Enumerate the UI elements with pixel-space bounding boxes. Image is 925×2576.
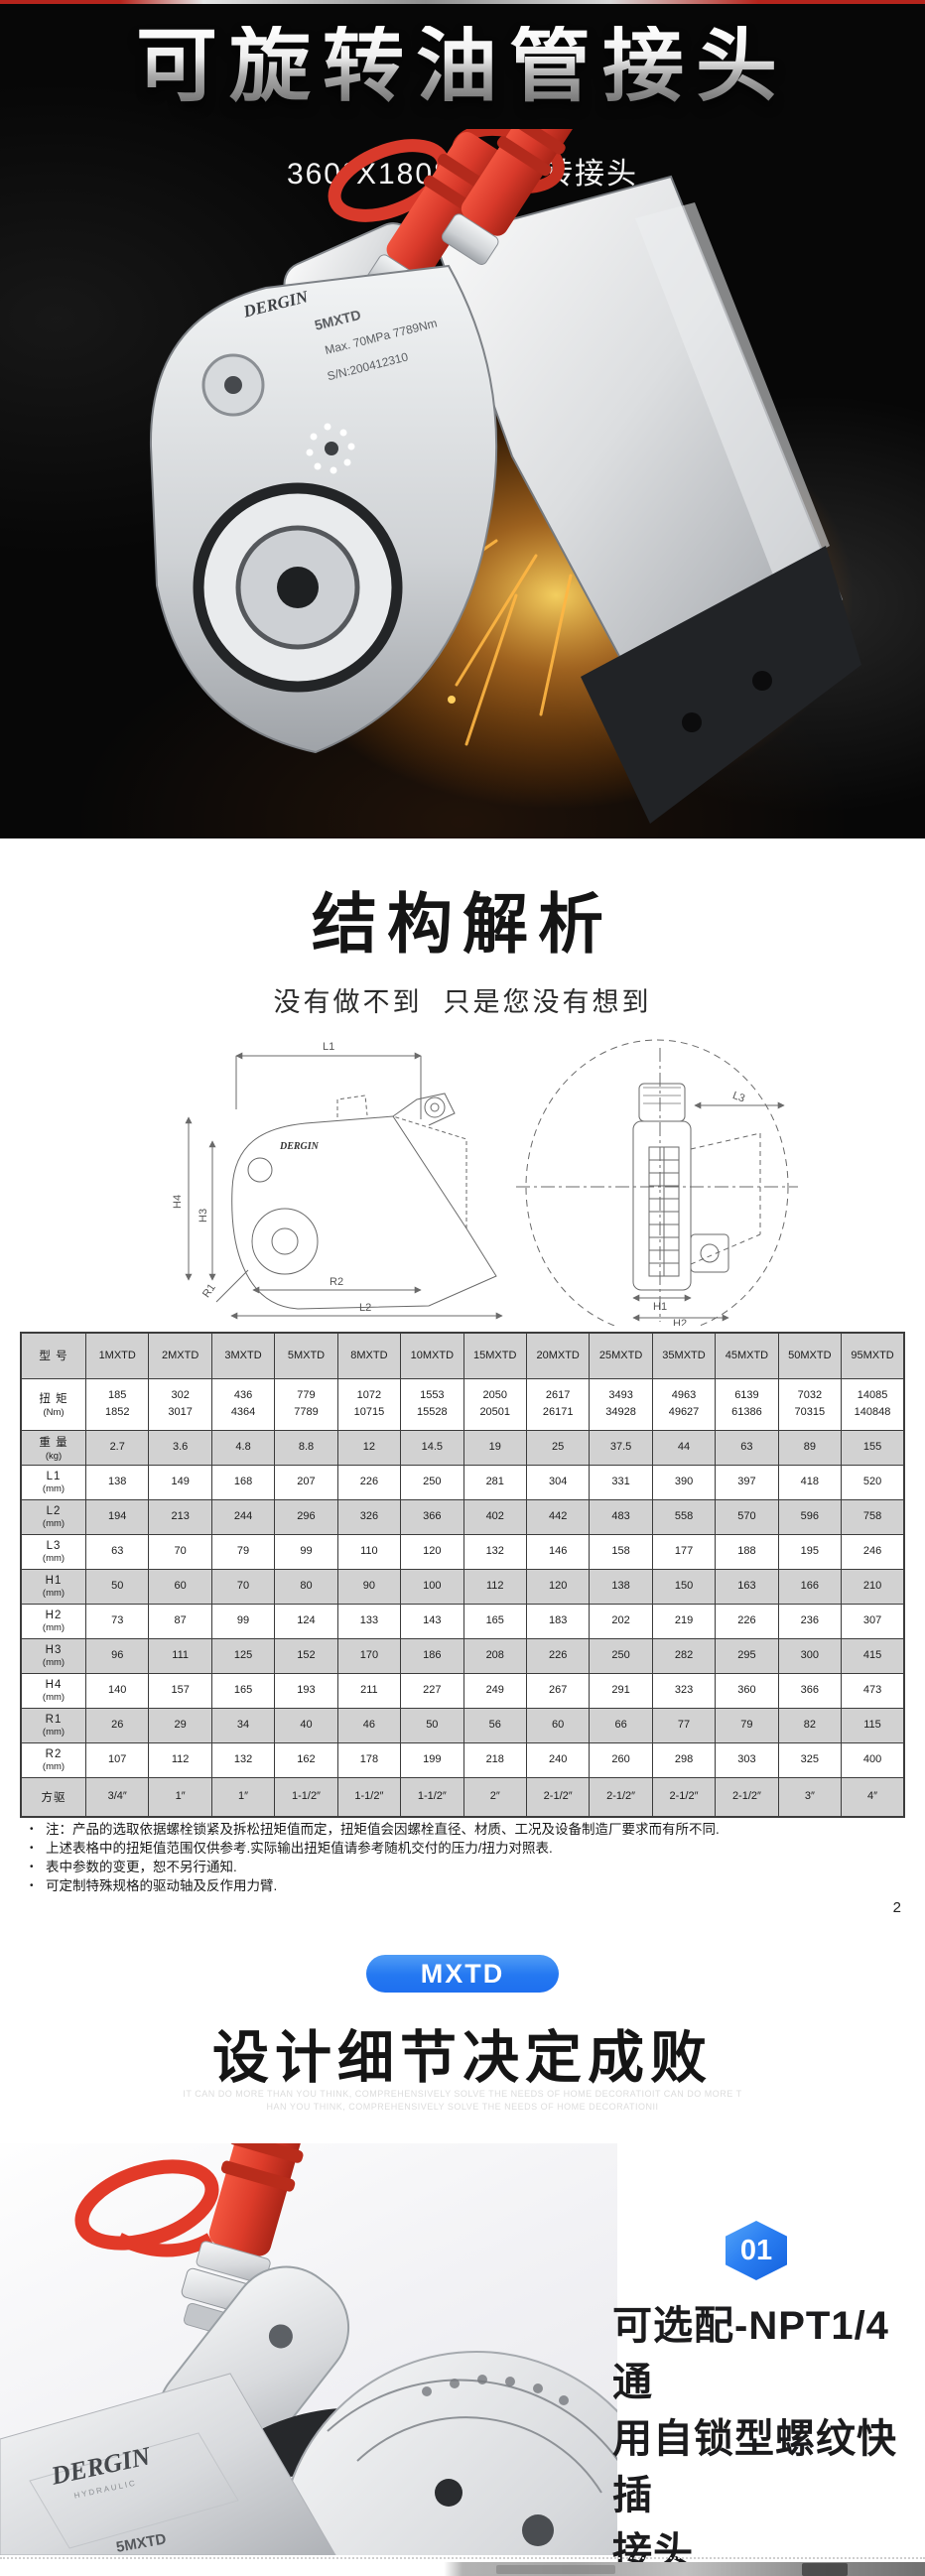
- spec-value: 260: [590, 1742, 652, 1777]
- spec-value: 295: [716, 1638, 778, 1673]
- spec-value: 227: [401, 1673, 463, 1708]
- spec-value: 307: [842, 1604, 904, 1638]
- spec-value: 168: [211, 1465, 274, 1499]
- spec-value: 1072 10715: [337, 1378, 400, 1430]
- spec-value: 66: [590, 1708, 652, 1742]
- spec-value: 415: [842, 1638, 904, 1673]
- spec-value: 366: [401, 1499, 463, 1534]
- spec-value: 157: [149, 1673, 211, 1708]
- spec-value: 473: [842, 1673, 904, 1708]
- spec-row-label: 型 号: [21, 1333, 86, 1378]
- feature-text-line2: 用自锁型螺纹快插: [612, 2411, 925, 2524]
- technical-drawing: L1 H4 H3 R1 R2 L2 L3 H1 H2 DERGIN: [0, 1030, 925, 1326]
- spec-value: 281: [463, 1465, 526, 1499]
- spec-row-label: L2(mm): [21, 1499, 86, 1534]
- spec-value: 107: [86, 1742, 149, 1777]
- svg-text:H4: H4: [172, 1195, 184, 1209]
- spec-row-label: 扭 矩(Nm): [21, 1378, 86, 1430]
- spec-model-header: 45MXTD: [716, 1333, 778, 1378]
- spec-value: 99: [275, 1534, 337, 1569]
- spec-value: 436 4364: [211, 1378, 274, 1430]
- spec-model-header: 8MXTD: [337, 1333, 400, 1378]
- spec-table: 型 号1MXTD2MXTD3MXTD5MXTD8MXTD10MXTD15MXTD…: [20, 1332, 905, 1818]
- spec-value: 2050 20501: [463, 1378, 526, 1430]
- spec-value: 758: [842, 1499, 904, 1534]
- drive-center: [277, 567, 319, 608]
- spec-value: 303: [716, 1742, 778, 1777]
- spec-value: 37.5: [590, 1430, 652, 1465]
- spec-value: 166: [778, 1569, 841, 1604]
- spec-value: 3″: [778, 1777, 841, 1817]
- spec-value: 213: [149, 1499, 211, 1534]
- spec-value: 3493 34928: [590, 1378, 652, 1430]
- note-item: 可定制特殊规格的驱动轴及反作用力臂.: [26, 1876, 899, 1895]
- spec-value: 249: [463, 1673, 526, 1708]
- spec-value: 162: [275, 1742, 337, 1777]
- spec-value: 82: [778, 1708, 841, 1742]
- hero-product-image: DERGIN 5MXTD Max. 70MPa 7789Nm S/N:20041…: [0, 129, 925, 838]
- spec-value: 4963 49627: [652, 1378, 715, 1430]
- spec-value: 226: [526, 1638, 589, 1673]
- spec-value: 90: [337, 1569, 400, 1604]
- spec-row-label: R2(mm): [21, 1742, 86, 1777]
- spec-value: 133: [337, 1604, 400, 1638]
- spec-value: 326: [337, 1499, 400, 1534]
- spec-value: 70: [211, 1569, 274, 1604]
- spec-value: 124: [275, 1604, 337, 1638]
- spec-value: 143: [401, 1604, 463, 1638]
- spec-value: 199: [401, 1742, 463, 1777]
- spec-value: 63: [86, 1534, 149, 1569]
- spec-value: 158: [590, 1534, 652, 1569]
- spec-value: 170: [337, 1638, 400, 1673]
- spec-value: 140: [86, 1673, 149, 1708]
- spec-model-header: 3MXTD: [211, 1333, 274, 1378]
- svg-text:L1: L1: [323, 1041, 334, 1053]
- spec-value: 2-1/2″: [590, 1777, 652, 1817]
- spec-value: 323: [652, 1673, 715, 1708]
- spec-value: 7032 70315: [778, 1378, 841, 1430]
- spec-row-label: 方驱: [21, 1777, 86, 1817]
- top-accent-strip: [0, 0, 925, 4]
- spec-value: 1553 15528: [401, 1378, 463, 1430]
- spec-value: 331: [590, 1465, 652, 1499]
- spec-value: 219: [652, 1604, 715, 1638]
- spec-value: 250: [401, 1465, 463, 1499]
- spec-value: 14.5: [401, 1430, 463, 1465]
- spec-value: 146: [526, 1534, 589, 1569]
- spec-model-header: 15MXTD: [463, 1333, 526, 1378]
- spec-value: 138: [86, 1465, 149, 1499]
- spec-value: 195: [778, 1534, 841, 1569]
- spec-value: 73: [86, 1604, 149, 1638]
- spec-value: 115: [842, 1708, 904, 1742]
- spec-value: 558: [652, 1499, 715, 1534]
- spec-value: 300: [778, 1638, 841, 1673]
- spec-value: 44: [652, 1430, 715, 1465]
- spec-value: 397: [716, 1465, 778, 1499]
- spec-value: 4.8: [211, 1430, 274, 1465]
- feature-number: 01: [740, 2235, 772, 2267]
- spec-value: 34: [211, 1708, 274, 1742]
- spec-value: 240: [526, 1742, 589, 1777]
- svg-text:L3: L3: [731, 1090, 747, 1104]
- note-item: 表中参数的变更，恕不另行通知.: [26, 1858, 899, 1876]
- spec-value: 155: [842, 1430, 904, 1465]
- spec-value: 207: [275, 1465, 337, 1499]
- spec-row-label: L3(mm): [21, 1534, 86, 1569]
- series-badge: MXTD: [366, 1955, 559, 1993]
- svg-text:R1: R1: [200, 1282, 218, 1300]
- spec-value: 19: [463, 1430, 526, 1465]
- spec-value: 177: [652, 1534, 715, 1569]
- note-item: 上述表格中的扭矩值范围仅供参考.实际输出扭矩值请参考随机交付的压力/扭力对照表.: [26, 1839, 899, 1858]
- spec-value: 2-1/2″: [652, 1777, 715, 1817]
- structure-subheading: 没有做不到 只是您没有想到: [0, 980, 925, 1019]
- spec-model-header: 20MXTD: [526, 1333, 589, 1378]
- spec-value: 40: [275, 1708, 337, 1742]
- spec-value: 210: [842, 1569, 904, 1604]
- spec-value: 366: [778, 1673, 841, 1708]
- spec-value: 779 7789: [275, 1378, 337, 1430]
- preview-fragment: [802, 2563, 848, 2576]
- spec-value: 79: [716, 1708, 778, 1742]
- spec-value: 400: [842, 1742, 904, 1777]
- spec-model-header: 25MXTD: [590, 1333, 652, 1378]
- svg-text:H2: H2: [673, 1318, 687, 1326]
- spec-value: 360: [716, 1673, 778, 1708]
- spec-value: 188: [716, 1534, 778, 1569]
- spec-model-header: 10MXTD: [401, 1333, 463, 1378]
- spec-value: 194: [86, 1499, 149, 1534]
- spec-value: 1″: [149, 1777, 211, 1817]
- spec-model-header: 35MXTD: [652, 1333, 715, 1378]
- spec-value: 2.7: [86, 1430, 149, 1465]
- spec-model-header: 50MXTD: [778, 1333, 841, 1378]
- spec-value: 100: [401, 1569, 463, 1604]
- spec-value: 63: [716, 1430, 778, 1465]
- spec-value: 50: [401, 1708, 463, 1742]
- spec-value: 2-1/2″: [716, 1777, 778, 1817]
- spec-value: 165: [211, 1673, 274, 1708]
- spec-value: 1-1/2″: [337, 1777, 400, 1817]
- spec-row-label: H1(mm): [21, 1569, 86, 1604]
- spec-value: 77: [652, 1708, 715, 1742]
- feature-text-line1: 可选配-NPT1/4 通: [612, 2298, 925, 2411]
- spec-value: 4″: [842, 1777, 904, 1817]
- spec-value: 2617 26171: [526, 1378, 589, 1430]
- spec-value: 89: [778, 1430, 841, 1465]
- spec-row-label: H3(mm): [21, 1638, 86, 1673]
- spec-value: 296: [275, 1499, 337, 1534]
- spec-model-header: 5MXTD: [275, 1333, 337, 1378]
- hero-section: 可旋转油管接头 360°X180°油管旋转接头: [0, 0, 925, 838]
- spec-value: 112: [149, 1742, 211, 1777]
- spec-table-wrap: 型 号1MXTD2MXTD3MXTD5MXTD8MXTD10MXTD15MXTD…: [20, 1332, 905, 1818]
- spec-value: 112: [463, 1569, 526, 1604]
- spec-value: 26: [86, 1708, 149, 1742]
- spec-value: 298: [652, 1742, 715, 1777]
- spec-value: 483: [590, 1499, 652, 1534]
- spec-value: 50: [86, 1569, 149, 1604]
- spec-value: 60: [526, 1708, 589, 1742]
- next-section-preview: [0, 2562, 925, 2576]
- spec-value: 132: [463, 1534, 526, 1569]
- feature-number-badge: 01: [726, 2221, 787, 2280]
- spec-row-label: 重 量(kg): [21, 1430, 86, 1465]
- spec-value: 1″: [211, 1777, 274, 1817]
- svg-text:H3: H3: [198, 1209, 209, 1223]
- spec-value: 570: [716, 1499, 778, 1534]
- svg-text:R2: R2: [330, 1276, 343, 1288]
- feature-product-image: DERGIN HYDRAULIC 5MXTD: [0, 2143, 617, 2555]
- spec-model-header: 1MXTD: [86, 1333, 149, 1378]
- spec-value: 110: [337, 1534, 400, 1569]
- spec-value: 390: [652, 1465, 715, 1499]
- spec-value: 165: [463, 1604, 526, 1638]
- spec-value: 29: [149, 1708, 211, 1742]
- spec-row-label: H2(mm): [21, 1604, 86, 1638]
- page-title: 可旋转油管接头: [0, 26, 925, 107]
- spec-value: 193: [275, 1673, 337, 1708]
- spec-value: 202: [590, 1604, 652, 1638]
- spec-value: 267: [526, 1673, 589, 1708]
- spec-value: 244: [211, 1499, 274, 1534]
- design-heading: 设计细节决定成败: [0, 2012, 925, 2094]
- spec-value: 2″: [463, 1777, 526, 1817]
- spec-value: 79: [211, 1534, 274, 1569]
- svg-text:L2: L2: [359, 1302, 371, 1314]
- spec-value: 149: [149, 1465, 211, 1499]
- spec-value: 80: [275, 1569, 337, 1604]
- notes-list: 注：产品的选取依据螺栓锁紧及拆松扭矩值而定，扭矩值会因螺栓直径、材质、工况及设备…: [26, 1820, 899, 1895]
- spec-value: 3.6: [149, 1430, 211, 1465]
- product-page: 可旋转油管接头 360°X180°油管旋转接头: [0, 0, 925, 2576]
- spec-value: 178: [337, 1742, 400, 1777]
- spec-value: 56: [463, 1708, 526, 1742]
- spec-value: 1-1/2″: [401, 1777, 463, 1817]
- spec-value: 402: [463, 1499, 526, 1534]
- spec-model-header: 95MXTD: [842, 1333, 904, 1378]
- design-subtext-line1: IT CAN DO MORE THAN YOU THINK, COMPREHEN…: [0, 2088, 925, 2101]
- structure-heading: 结构解析: [0, 871, 925, 966]
- spec-row-label: L1(mm): [21, 1465, 86, 1499]
- foot-bolt: [682, 712, 702, 732]
- spec-value: 70: [149, 1534, 211, 1569]
- section-divider: [0, 2557, 925, 2559]
- spec-value: 246: [842, 1534, 904, 1569]
- design-subtext-line2: HAN YOU THINK, COMPREHENSIVELY SOLVE THE…: [0, 2101, 925, 2114]
- foot-bolt: [752, 671, 772, 691]
- spec-value: 111: [149, 1638, 211, 1673]
- spec-value: 208: [463, 1638, 526, 1673]
- spec-value: 211: [337, 1673, 400, 1708]
- dial-center: [325, 442, 338, 455]
- spec-value: 183: [526, 1604, 589, 1638]
- spec-value: 152: [275, 1638, 337, 1673]
- feature-photo: DERGIN HYDRAULIC 5MXTD: [0, 2143, 617, 2555]
- spec-value: 250: [590, 1638, 652, 1673]
- spec-value: 150: [652, 1569, 715, 1604]
- note-item: 注：产品的选取依据螺栓锁紧及拆松扭矩值而定，扭矩值会因螺栓直径、材质、工况及设备…: [26, 1820, 899, 1839]
- spec-value: 218: [463, 1742, 526, 1777]
- spec-value: 60: [149, 1569, 211, 1604]
- spec-value: 442: [526, 1499, 589, 1534]
- spec-value: 14085 140848: [842, 1378, 904, 1430]
- spec-value: 99: [211, 1604, 274, 1638]
- preview-fragment: [496, 2565, 615, 2574]
- spec-value: 418: [778, 1465, 841, 1499]
- spec-value: 186: [401, 1638, 463, 1673]
- spec-value: 163: [716, 1569, 778, 1604]
- spec-value: 3/4″: [86, 1777, 149, 1817]
- spec-model-header: 2MXTD: [149, 1333, 211, 1378]
- spec-value: 87: [149, 1604, 211, 1638]
- svg-text:DERGIN: DERGIN: [279, 1141, 320, 1152]
- spec-row-label: R1(mm): [21, 1708, 86, 1742]
- spec-value: 138: [590, 1569, 652, 1604]
- spec-value: 6139 61386: [716, 1378, 778, 1430]
- spec-value: 282: [652, 1638, 715, 1673]
- page-number: 2: [893, 1899, 901, 1916]
- spec-value: 2-1/2″: [526, 1777, 589, 1817]
- spec-value: 325: [778, 1742, 841, 1777]
- spec-value: 46: [337, 1708, 400, 1742]
- design-subtext: IT CAN DO MORE THAN YOU THINK, COMPREHEN…: [0, 2088, 925, 2114]
- spec-value: 1-1/2″: [275, 1777, 337, 1817]
- spec-value: 302 3017: [149, 1378, 211, 1430]
- svg-text:H1: H1: [653, 1301, 667, 1313]
- spec-value: 132: [211, 1742, 274, 1777]
- spec-value: 125: [211, 1638, 274, 1673]
- spec-value: 304: [526, 1465, 589, 1499]
- spec-value: 12: [337, 1430, 400, 1465]
- head-port-hole: [224, 376, 242, 394]
- spec-value: 236: [778, 1604, 841, 1638]
- spec-value: 185 1852: [86, 1378, 149, 1430]
- spec-value: 226: [337, 1465, 400, 1499]
- spec-value: 120: [401, 1534, 463, 1569]
- feature-text: 可选配-NPT1/4 通 用自锁型螺纹快插 接头: [612, 2298, 925, 2576]
- spec-value: 120: [526, 1569, 589, 1604]
- spec-value: 25: [526, 1430, 589, 1465]
- spec-value: 596: [778, 1499, 841, 1534]
- spec-value: 520: [842, 1465, 904, 1499]
- spec-value: 291: [590, 1673, 652, 1708]
- spec-value: 96: [86, 1638, 149, 1673]
- spec-row-label: H4(mm): [21, 1673, 86, 1708]
- spec-value: 226: [716, 1604, 778, 1638]
- spec-value: 8.8: [275, 1430, 337, 1465]
